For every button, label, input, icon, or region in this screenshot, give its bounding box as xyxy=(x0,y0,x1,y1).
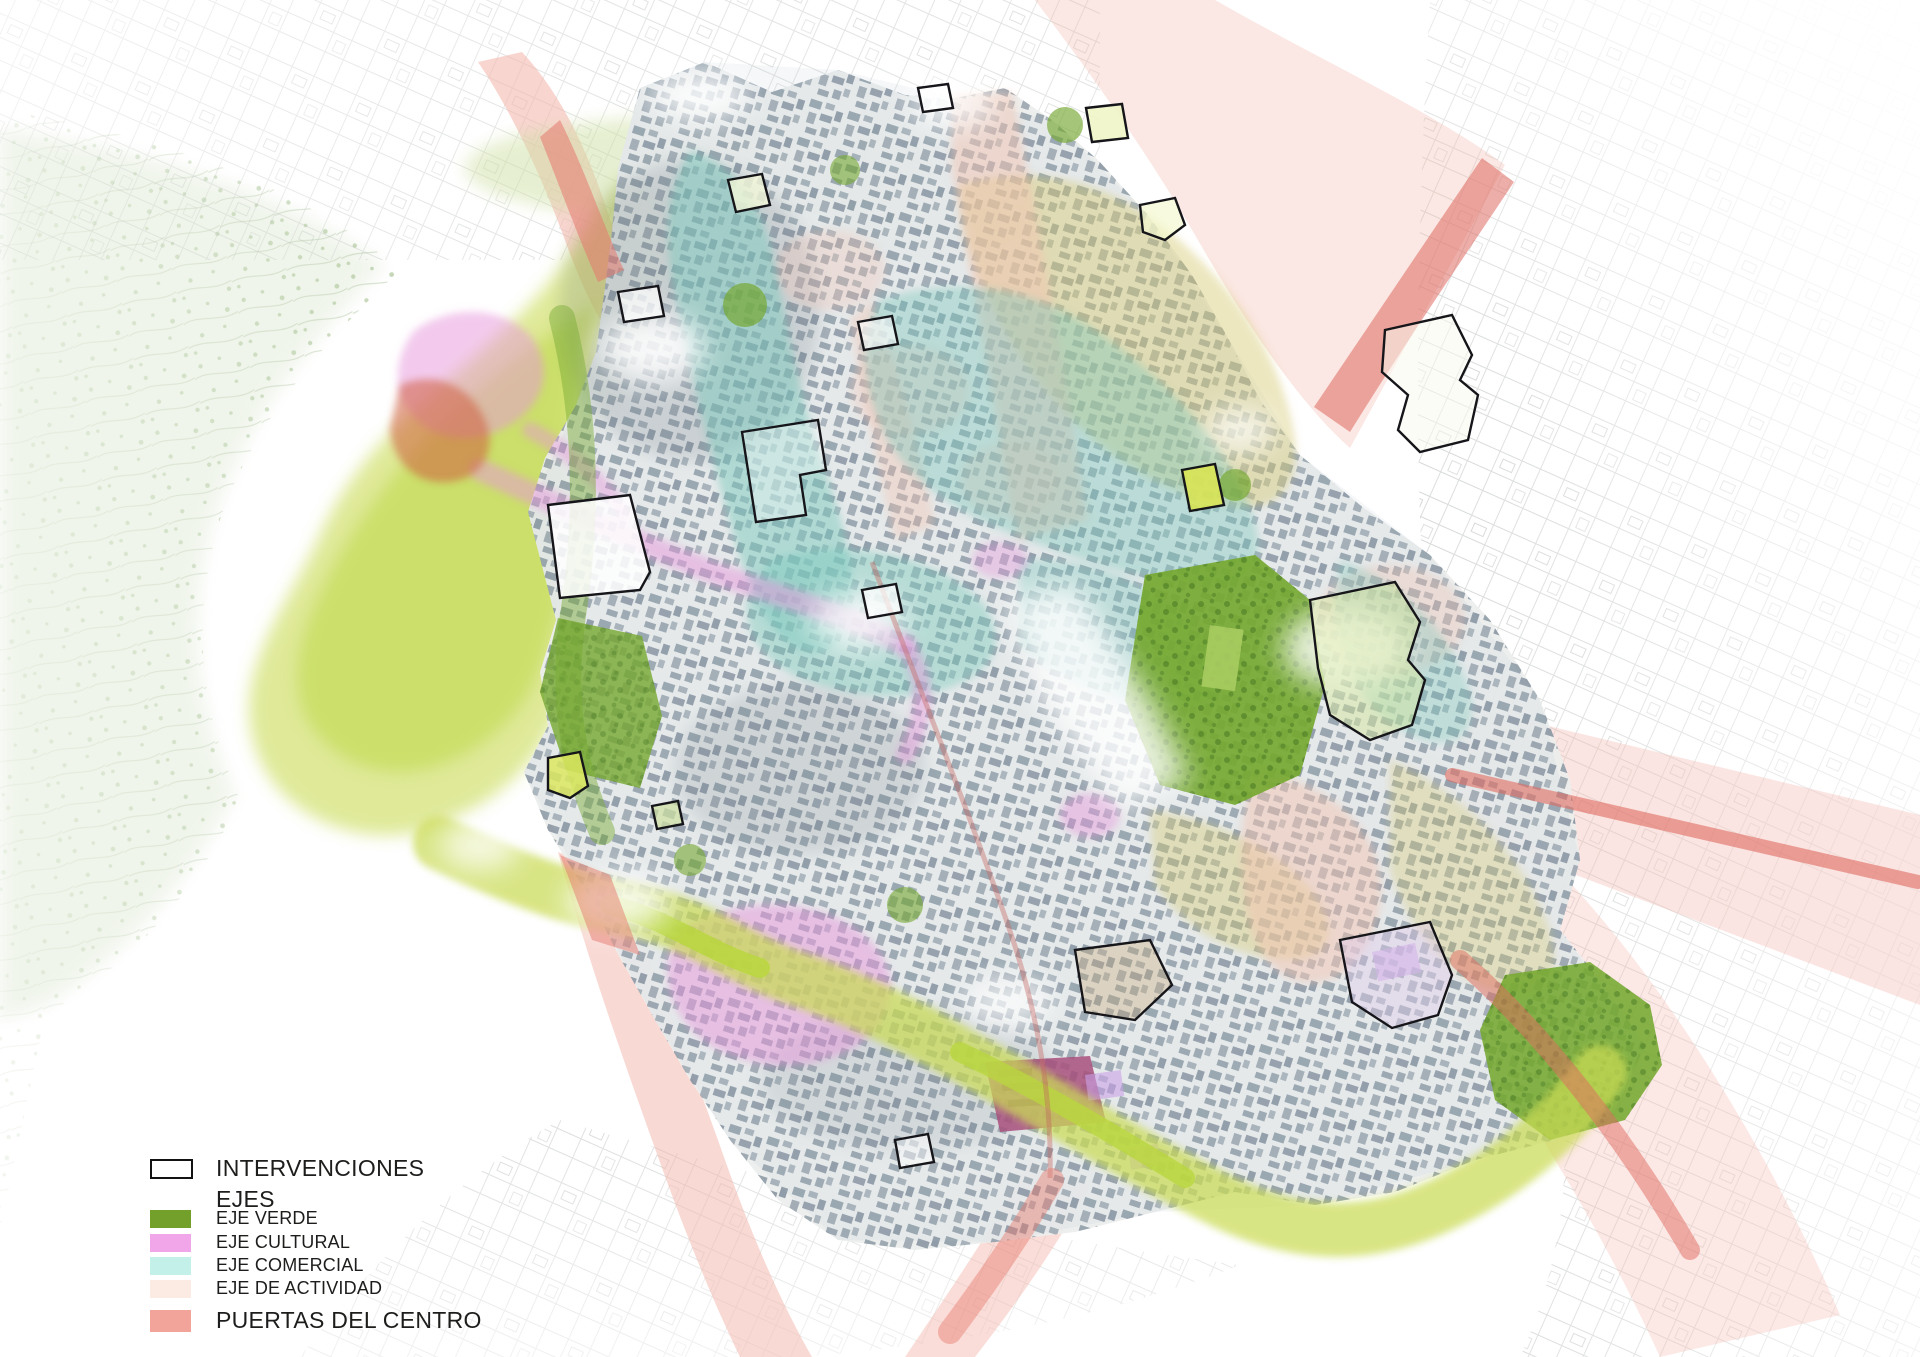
swatch-color xyxy=(150,1210,191,1228)
legend-row-interventions: INTERVENCIONES xyxy=(150,1155,424,1182)
pink-patch xyxy=(972,542,1028,578)
legend-row-puertas: PUERTAS DEL CENTRO xyxy=(150,1307,482,1334)
intervention xyxy=(728,174,770,212)
eje-comercial-swatch xyxy=(150,1257,191,1275)
glow xyxy=(1204,408,1276,452)
intervention xyxy=(1182,464,1224,511)
glow xyxy=(652,72,748,120)
eje-verde-swatch xyxy=(150,1210,191,1228)
eje-actividad-swatch xyxy=(150,1280,191,1298)
legend-row-eje-comercial: EJE COMERCIAL xyxy=(150,1255,364,1276)
map-legend: INTERVENCIONES EJES EJE VERDE EJE CULTUR… xyxy=(150,1150,510,1350)
eje-cultural-swatch xyxy=(150,1234,191,1252)
puertas-swatch xyxy=(150,1310,191,1332)
glow xyxy=(962,976,1054,1028)
swatch-color xyxy=(150,1280,191,1298)
intervention xyxy=(918,84,953,112)
dense-district-south xyxy=(675,685,925,855)
eje-verde-label: EJE VERDE xyxy=(216,1208,318,1229)
small-park xyxy=(830,155,860,185)
legend-row-eje-cultural: EJE CULTURAL xyxy=(150,1232,350,1253)
intervention xyxy=(858,316,898,350)
chamberi-wash xyxy=(775,230,885,310)
legend-row-eje-actividad: EJE DE ACTIVIDAD xyxy=(150,1278,382,1299)
pink-patch xyxy=(1060,793,1120,837)
intervention xyxy=(618,286,664,322)
lilac-patch xyxy=(1085,1070,1124,1101)
glow xyxy=(600,314,704,382)
swatch-color xyxy=(150,1234,191,1252)
small-park xyxy=(1047,107,1083,143)
intervention xyxy=(1086,104,1128,142)
eje-comercial-label: EJE COMERCIAL xyxy=(216,1255,364,1276)
eje-cultural-label: EJE CULTURAL xyxy=(216,1232,350,1253)
intervention xyxy=(548,495,650,598)
small-park xyxy=(723,283,767,327)
interventions-label: INTERVENCIONES xyxy=(216,1155,424,1182)
puertas-label: PUERTAS DEL CENTRO xyxy=(216,1307,482,1334)
swatch-color xyxy=(150,1310,191,1332)
swatch-color xyxy=(150,1257,191,1275)
intervention xyxy=(862,584,902,618)
small-park xyxy=(1219,469,1251,501)
glow xyxy=(440,822,520,870)
intervention xyxy=(652,801,683,829)
intervention xyxy=(548,752,588,798)
small-park xyxy=(674,844,706,876)
eje-actividad-label: EJE DE ACTIVIDAD xyxy=(216,1278,382,1299)
interventions-swatch xyxy=(150,1159,193,1179)
intervention xyxy=(895,1134,934,1168)
urban-masterplan-screenshot: INTERVENCIONES EJES EJE VERDE EJE CULTUR… xyxy=(0,0,1920,1357)
legend-row-eje-verde: EJE VERDE xyxy=(150,1208,318,1229)
small-park xyxy=(887,887,923,923)
